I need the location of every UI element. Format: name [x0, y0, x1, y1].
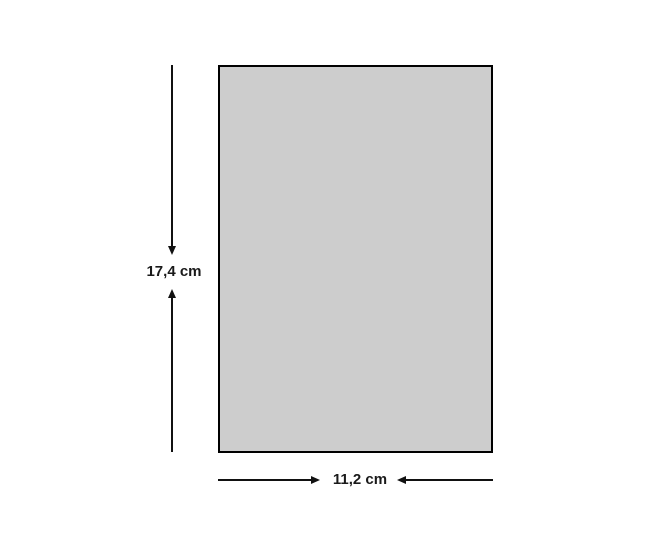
width-dimension-line-right — [406, 479, 493, 481]
width-dimension-line-left — [218, 479, 312, 481]
arrow-left-icon — [397, 476, 406, 484]
height-dimension-line-top — [171, 65, 173, 247]
dimension-diagram: 17,4 cm 11,2 cm — [0, 0, 670, 543]
arrow-down-icon — [168, 246, 176, 255]
height-dimension-line-bottom — [171, 297, 173, 452]
rectangle-shape — [218, 65, 493, 453]
height-dimension-label: 17,4 cm — [132, 262, 216, 282]
width-dimension-label: 11,2 cm — [318, 470, 402, 490]
